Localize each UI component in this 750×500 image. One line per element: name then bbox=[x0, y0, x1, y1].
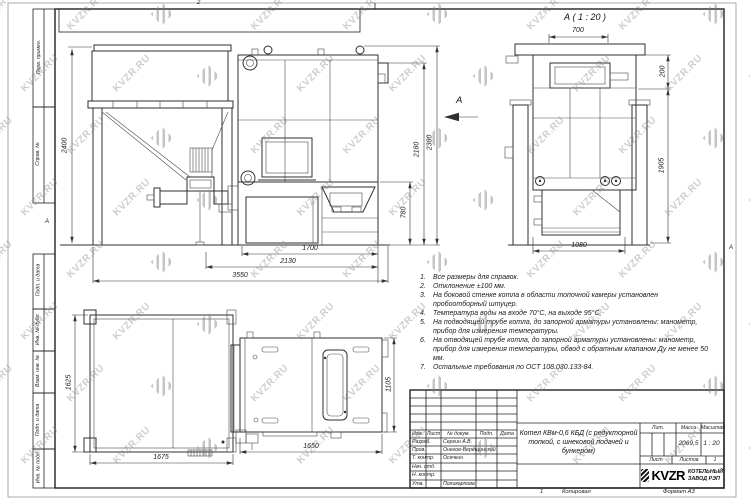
format-label: Формат А3 bbox=[663, 489, 695, 495]
tb-role-utv: Утв. bbox=[412, 481, 424, 487]
tb-mass-label: Масса bbox=[676, 425, 701, 431]
dim-label-1675: 1675 bbox=[141, 454, 181, 461]
view-detail-a bbox=[505, 34, 671, 254]
dim-label-1905: 1905 bbox=[659, 149, 666, 183]
tb-sheets-value: 1 bbox=[706, 457, 724, 463]
view-direction-arrow-icon bbox=[444, 113, 459, 121]
view-plan-boiler bbox=[231, 332, 397, 454]
dim-label-700: 700 bbox=[558, 27, 598, 34]
note-item: 2.Отклонение ±100 мм. bbox=[420, 283, 712, 292]
note-item: 7.Остальные требования по ОСТ 108.030.13… bbox=[420, 364, 712, 373]
tb-name-razrab: Сергин А.В. bbox=[443, 439, 472, 445]
copied-label: Копировал bbox=[562, 489, 591, 495]
margin-label-perv-primen: Перв. примен. bbox=[36, 8, 42, 106]
note-item: 3.На боковой стенке котла в области топо… bbox=[420, 292, 712, 310]
zone-mark-top: 2 bbox=[197, 0, 200, 6]
dim-label-2380: 2380 bbox=[427, 126, 434, 160]
tb-scale-label: Масштаб bbox=[701, 425, 724, 431]
dim-label-1650: 1650 bbox=[291, 443, 331, 450]
dim-label-1080: 1080 bbox=[559, 242, 599, 249]
zone-mark-right: А bbox=[729, 245, 733, 251]
tb-sheet-label: Лист bbox=[640, 457, 672, 463]
margin-label-vzam-inv: Взам. инв. № bbox=[35, 350, 41, 392]
dim-label-200: 200 bbox=[660, 55, 667, 89]
note-item: 4.Температура воды на входе 70°С, на вых… bbox=[420, 310, 712, 319]
tb-role-prov: Пров. bbox=[412, 447, 426, 453]
dim-label-780: 780 bbox=[401, 196, 408, 230]
margin-label-podp-data-2: Подп. и дата bbox=[35, 392, 41, 448]
zone-mark-bottom: 1 bbox=[540, 489, 543, 495]
detail-view-title: А ( 1 : 20 ) bbox=[545, 12, 625, 22]
tb-sheets-label: Листов bbox=[672, 457, 706, 463]
company-name: КОТЕЛЬНЫЙ ЗАВОД РЭП bbox=[688, 469, 723, 481]
tb-role-nachotd: Нач. отд. bbox=[412, 464, 435, 470]
margin-label-inv-dubl: Инв. № дубл. bbox=[35, 308, 41, 350]
view-plan-bunker bbox=[72, 310, 236, 465]
view-arrow-label: А bbox=[456, 95, 462, 106]
tb-header-sign: Подп. bbox=[476, 431, 497, 437]
margin-label-podp-data-1: Подп. и дата bbox=[36, 253, 42, 308]
dim-label-1700: 1700 bbox=[290, 245, 330, 252]
tb-scale-value: 1 : 20 bbox=[699, 440, 724, 447]
tb-lit-label: Лит. bbox=[640, 425, 676, 431]
note-item: 1.Все размеры для справок. bbox=[420, 274, 712, 283]
tb-header-doc: № докум. bbox=[441, 431, 476, 437]
note-item: 5.На подводящей трубе котла, до запорной… bbox=[420, 319, 712, 337]
technical-notes: 1.Все размеры для справок. 2.Отклонение … bbox=[420, 274, 712, 372]
tb-header-date: Дата bbox=[497, 431, 517, 437]
company-cell: KVZR КОТЕЛЬНЫЙ ЗАВОД РЭП bbox=[641, 464, 723, 487]
dim-label-1625: 1625 bbox=[66, 366, 73, 400]
zone-mark-left: А bbox=[45, 219, 49, 225]
dim-label-2180: 2180 bbox=[414, 133, 421, 167]
margin-label-sprav-no: Справ. № bbox=[35, 106, 41, 202]
tb-name-utv: Поликарпова bbox=[443, 481, 475, 487]
margin-label-inv-podl: Инв. № подл. bbox=[36, 448, 42, 487]
dim-label-1105: 1105 bbox=[386, 368, 393, 402]
note-item: 6.На отводящей трубе котла, до запорной … bbox=[420, 337, 712, 364]
tb-role-tkontr: Т. контр. bbox=[412, 455, 434, 461]
drawing-sheet: 2400 1700 2130 3550 780 2180 2380 700 20… bbox=[0, 0, 750, 500]
view-front-bunker bbox=[60, 45, 238, 245]
tb-mass-value: 2069,5 bbox=[676, 440, 701, 447]
dim-label-3550: 3550 bbox=[220, 272, 260, 279]
tb-header-list: Лист bbox=[425, 431, 442, 437]
tb-name-prov: Онегов-Верещинский bbox=[443, 447, 496, 453]
tb-name-tkontr: Осечкин bbox=[443, 455, 463, 461]
dim-label-2400: 2400 bbox=[62, 129, 69, 163]
document-title: Котел КВм-0,6 КБД (с редукторной топкой,… bbox=[519, 424, 638, 463]
tb-role-razrab: Разраб. bbox=[412, 439, 431, 445]
kvzr-logo-icon bbox=[641, 469, 649, 482]
tb-role-nkontr: Н. контр. bbox=[412, 472, 435, 478]
dim-label-2130: 2130 bbox=[268, 258, 308, 265]
kvzr-logo-text: KVZR bbox=[652, 468, 685, 483]
